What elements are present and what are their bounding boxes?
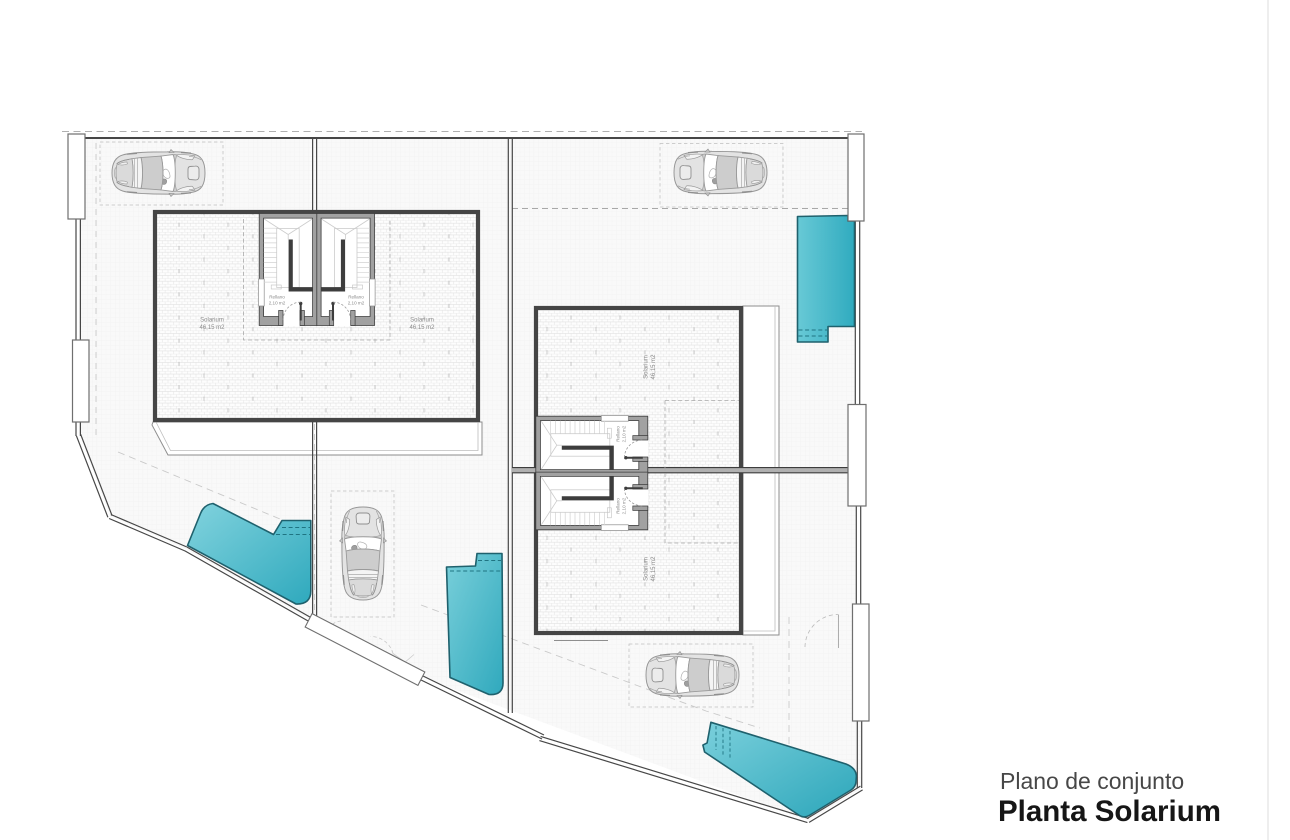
svg-text:Solarium46,15 m2: Solarium46,15 m2 bbox=[199, 318, 225, 332]
svg-text:Rellano2,10 m2: Rellano2,10 m2 bbox=[616, 497, 627, 514]
svg-text:Rellano2,10 m2: Rellano2,10 m2 bbox=[348, 295, 365, 306]
svg-text:Rellano2,10 m2: Rellano2,10 m2 bbox=[616, 425, 627, 442]
svg-text:Rellano2,10 m2: Rellano2,10 m2 bbox=[269, 295, 286, 306]
svg-text:Solarium46,15 m2: Solarium46,15 m2 bbox=[409, 318, 435, 332]
svg-text:Plano de conjunto: Plano de conjunto bbox=[1000, 768, 1184, 794]
svg-text:Solarium46,15 m2: Solarium46,15 m2 bbox=[644, 556, 658, 582]
svg-text:Planta Solarium: Planta Solarium bbox=[998, 795, 1221, 828]
svg-text:Solarium46,15 m2: Solarium46,15 m2 bbox=[644, 354, 658, 380]
